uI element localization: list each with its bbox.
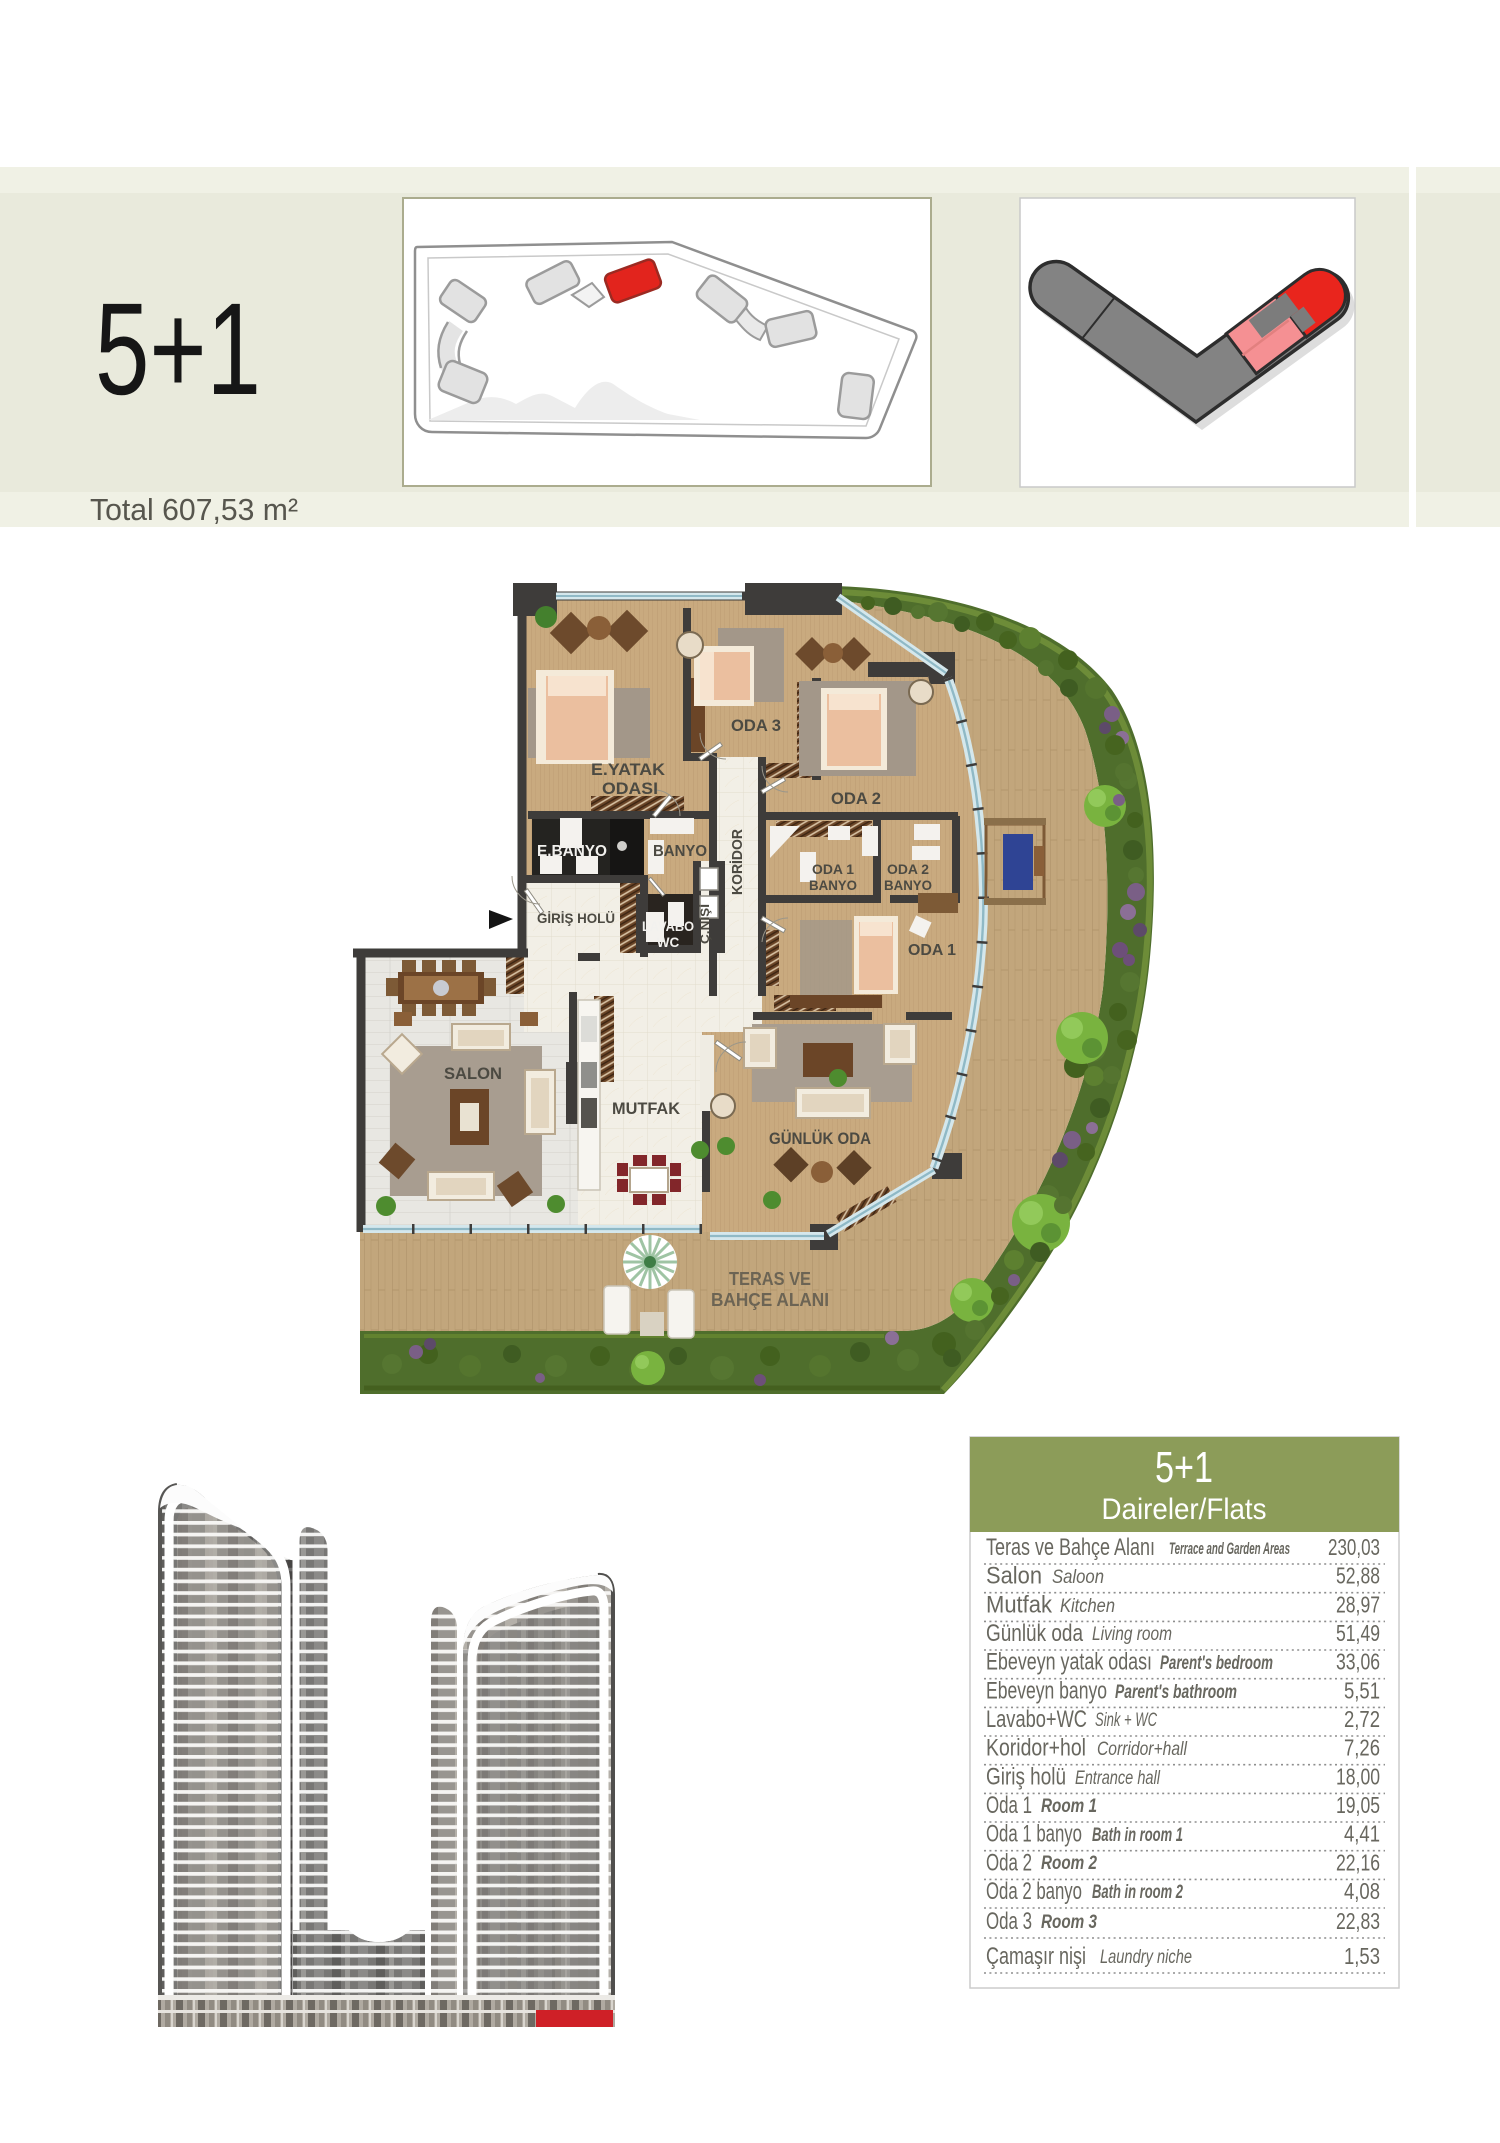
svg-text:5+1: 5+1 <box>1155 1443 1213 1492</box>
svg-text:4,08: 4,08 <box>1344 1878 1380 1904</box>
svg-text:18,00: 18,00 <box>1336 1763 1380 1789</box>
svg-text:Ç.NİŞİ: Ç.NİŞİ <box>699 904 712 944</box>
svg-text:Bath in room 2: Bath in room 2 <box>1092 1882 1183 1903</box>
svg-text:Living room: Living room <box>1092 1624 1172 1645</box>
svg-text:Ebeveyn banyo: Ebeveyn banyo <box>986 1677 1107 1704</box>
svg-text:LAVABO: LAVABO <box>642 919 694 934</box>
svg-text:Daireler/Flats: Daireler/Flats <box>1102 1493 1267 1526</box>
svg-text:Ebeveyn yatak odası: Ebeveyn yatak odası <box>986 1649 1152 1676</box>
svg-text:MUTFAK: MUTFAK <box>612 1099 681 1118</box>
svg-text:51,49: 51,49 <box>1336 1620 1380 1646</box>
svg-text:Oda 1 banyo: Oda 1 banyo <box>986 1821 1082 1848</box>
svg-text:Room 3: Room 3 <box>1041 1912 1097 1933</box>
svg-text:52,88: 52,88 <box>1336 1563 1380 1589</box>
svg-text:33,06: 33,06 <box>1336 1649 1380 1675</box>
svg-text:ODA 1: ODA 1 <box>908 942 956 959</box>
svg-text:Parent's bedroom: Parent's bedroom <box>1160 1653 1273 1674</box>
svg-text:Oda 3: Oda 3 <box>986 1908 1032 1935</box>
svg-text:22,16: 22,16 <box>1336 1849 1380 1875</box>
svg-text:TERAS VE: TERAS VE <box>729 1269 811 1289</box>
svg-text:ODA 2: ODA 2 <box>831 789 881 808</box>
svg-text:Salon: Salon <box>986 1563 1042 1590</box>
svg-text:Oda 2 banyo: Oda 2 banyo <box>986 1878 1082 1905</box>
svg-text:Total 607,53 m²: Total 607,53 m² <box>90 492 298 527</box>
svg-text:7,26: 7,26 <box>1344 1735 1380 1761</box>
svg-text:4,41: 4,41 <box>1344 1821 1380 1847</box>
svg-text:SALON: SALON <box>444 1064 502 1083</box>
svg-text:Giriş holü: Giriş holü <box>986 1763 1066 1790</box>
svg-text:Oda 2: Oda 2 <box>986 1849 1032 1876</box>
svg-text:Entrance hall: Entrance hall <box>1075 1768 1161 1789</box>
svg-text:Bath in room 1: Bath in room 1 <box>1092 1825 1183 1846</box>
svg-text:Mutfak: Mutfak <box>986 1591 1053 1618</box>
svg-text:5,51: 5,51 <box>1344 1677 1380 1703</box>
svg-text:Terrace and Garden Areas: Terrace and Garden Areas <box>1169 1540 1290 1558</box>
svg-text:Laundry niche: Laundry niche <box>1100 1947 1192 1968</box>
svg-text:E.BANYO: E.BANYO <box>537 843 607 860</box>
svg-text:ODASI: ODASI <box>602 779 658 798</box>
svg-text:Kitchen: Kitchen <box>1060 1596 1115 1617</box>
svg-text:GİRİŞ HOLÜ: GİRİŞ HOLÜ <box>537 910 615 926</box>
svg-text:Koridor+hol: Koridor+hol <box>986 1735 1086 1762</box>
svg-text:BANYO: BANYO <box>884 878 932 893</box>
svg-text:Saloon: Saloon <box>1052 1567 1104 1588</box>
svg-text:Room 2: Room 2 <box>1041 1853 1097 1874</box>
svg-text:BANYO: BANYO <box>809 878 857 893</box>
svg-text:Room 1: Room 1 <box>1041 1796 1097 1817</box>
svg-text:ODA 2: ODA 2 <box>887 862 929 877</box>
svg-text:ODA 3: ODA 3 <box>731 716 781 735</box>
svg-text:GÜNLÜK ODA: GÜNLÜK ODA <box>769 1129 871 1148</box>
svg-text:5+1: 5+1 <box>95 275 261 422</box>
svg-text:WC: WC <box>657 935 680 950</box>
svg-text:Teras ve Bahçe Alanı: Teras ve Bahçe Alanı <box>986 1534 1155 1561</box>
svg-text:BANYO: BANYO <box>653 843 707 860</box>
svg-text:KORİDOR: KORİDOR <box>729 829 746 895</box>
svg-text:2,72: 2,72 <box>1344 1706 1380 1732</box>
svg-text:Lavabo+WC: Lavabo+WC <box>986 1706 1087 1733</box>
svg-text:ODA 1: ODA 1 <box>812 862 854 877</box>
svg-text:Çamaşır nişi: Çamaşır nişi <box>986 1943 1086 1970</box>
svg-text:Günlük oda: Günlük oda <box>986 1620 1084 1647</box>
svg-text:28,97: 28,97 <box>1336 1591 1380 1617</box>
svg-text:19,05: 19,05 <box>1336 1792 1380 1818</box>
svg-text:E.YATAK: E.YATAK <box>591 760 666 779</box>
svg-text:Oda 1: Oda 1 <box>986 1792 1032 1819</box>
svg-text:22,83: 22,83 <box>1336 1908 1380 1934</box>
svg-text:BAHÇE ALANI: BAHÇE ALANI <box>711 1290 829 1310</box>
svg-text:Corridor+hall: Corridor+hall <box>1097 1739 1188 1760</box>
svg-text:1,53: 1,53 <box>1344 1943 1380 1969</box>
svg-text:230,03: 230,03 <box>1328 1534 1380 1560</box>
svg-text:Parent's bathroom: Parent's bathroom <box>1115 1682 1237 1703</box>
svg-text:Sink + WC: Sink + WC <box>1095 1710 1157 1731</box>
